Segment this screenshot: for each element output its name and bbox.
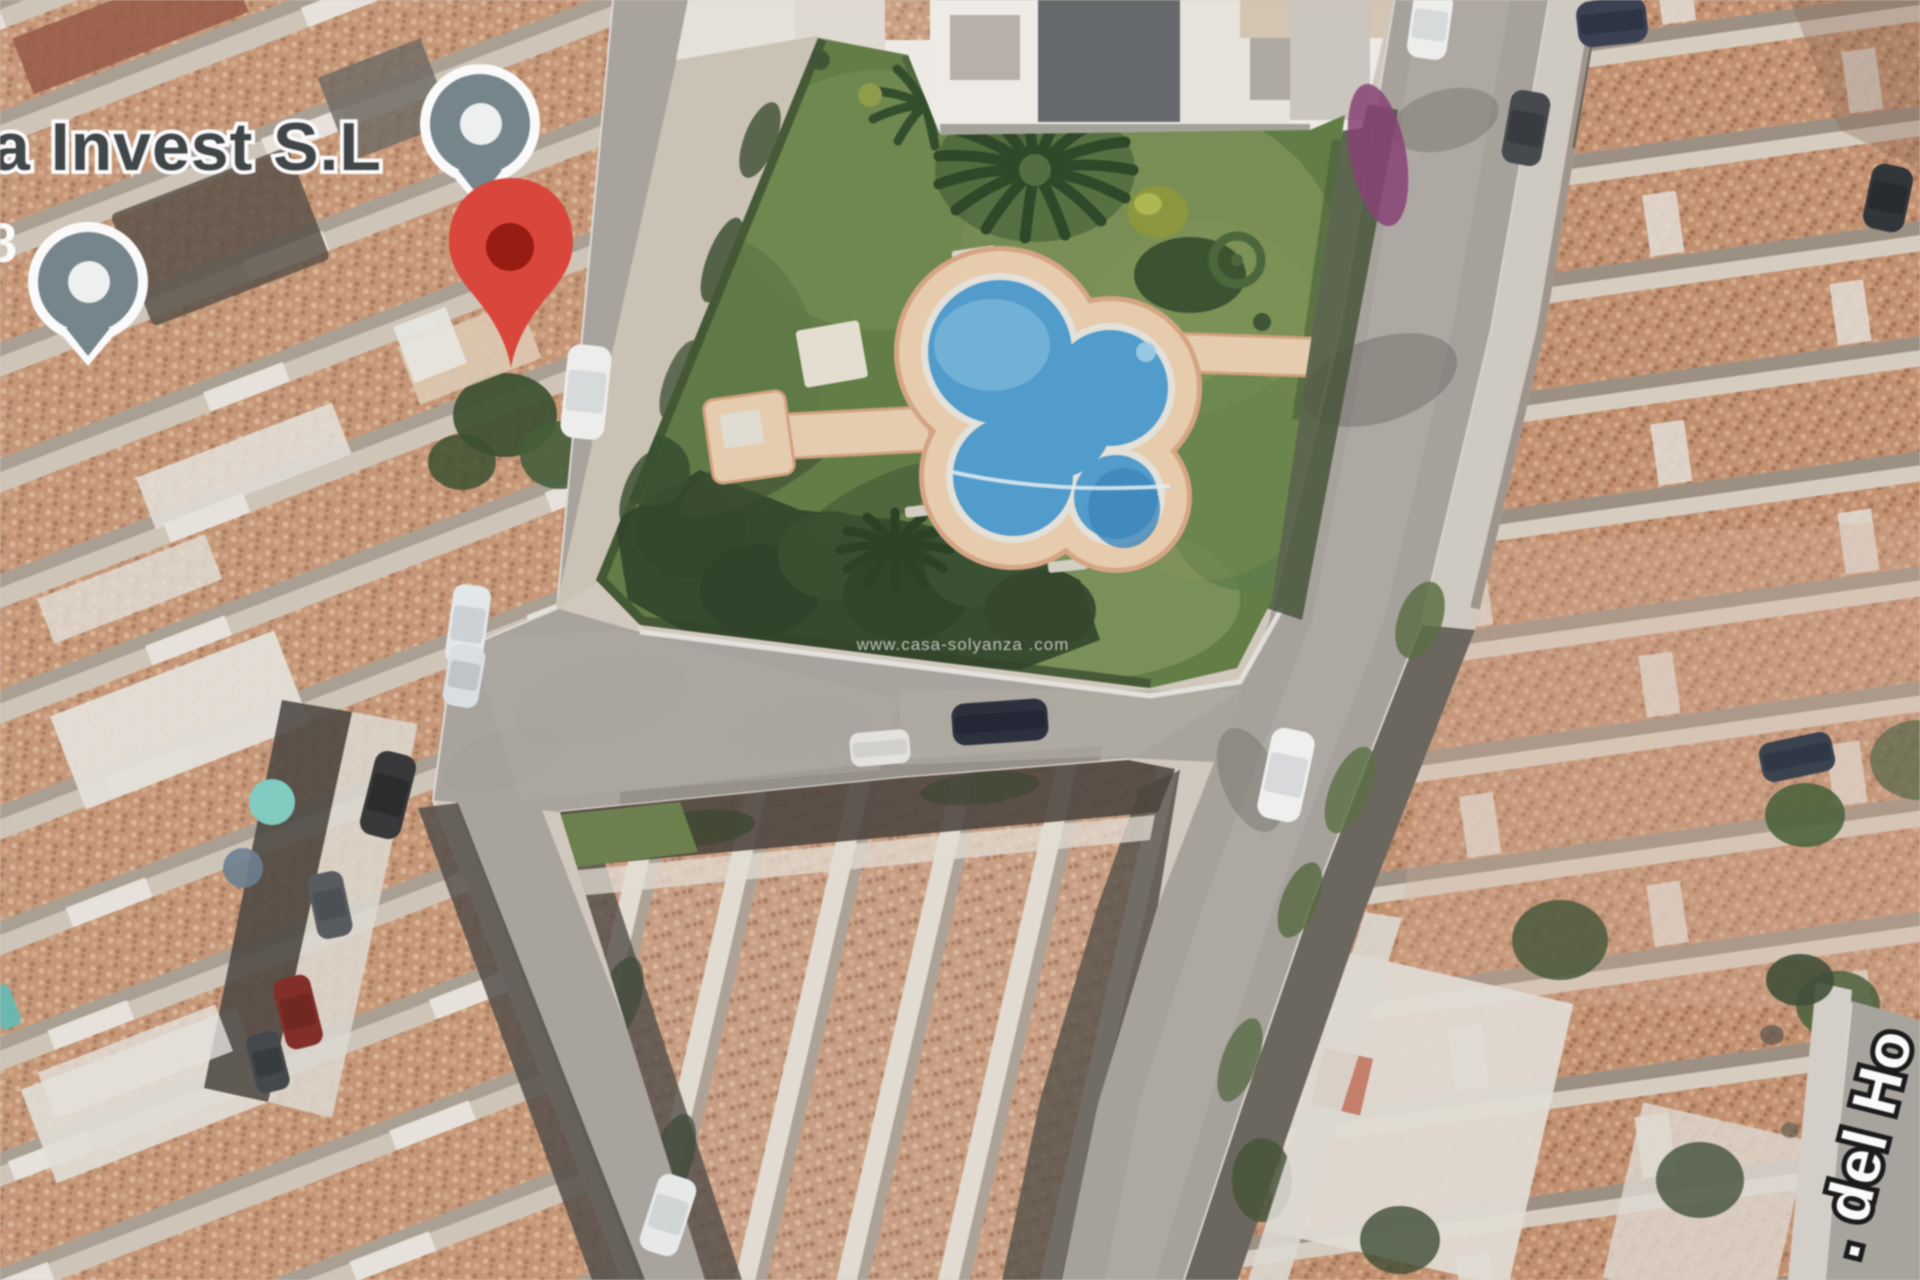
svg-text:www.casa-solyanza .com: www.casa-solyanza .com — [856, 635, 1070, 654]
svg-text:8: 8 — [0, 211, 17, 274]
svg-text:a Invest S.L: a Invest S.L — [0, 109, 382, 185]
